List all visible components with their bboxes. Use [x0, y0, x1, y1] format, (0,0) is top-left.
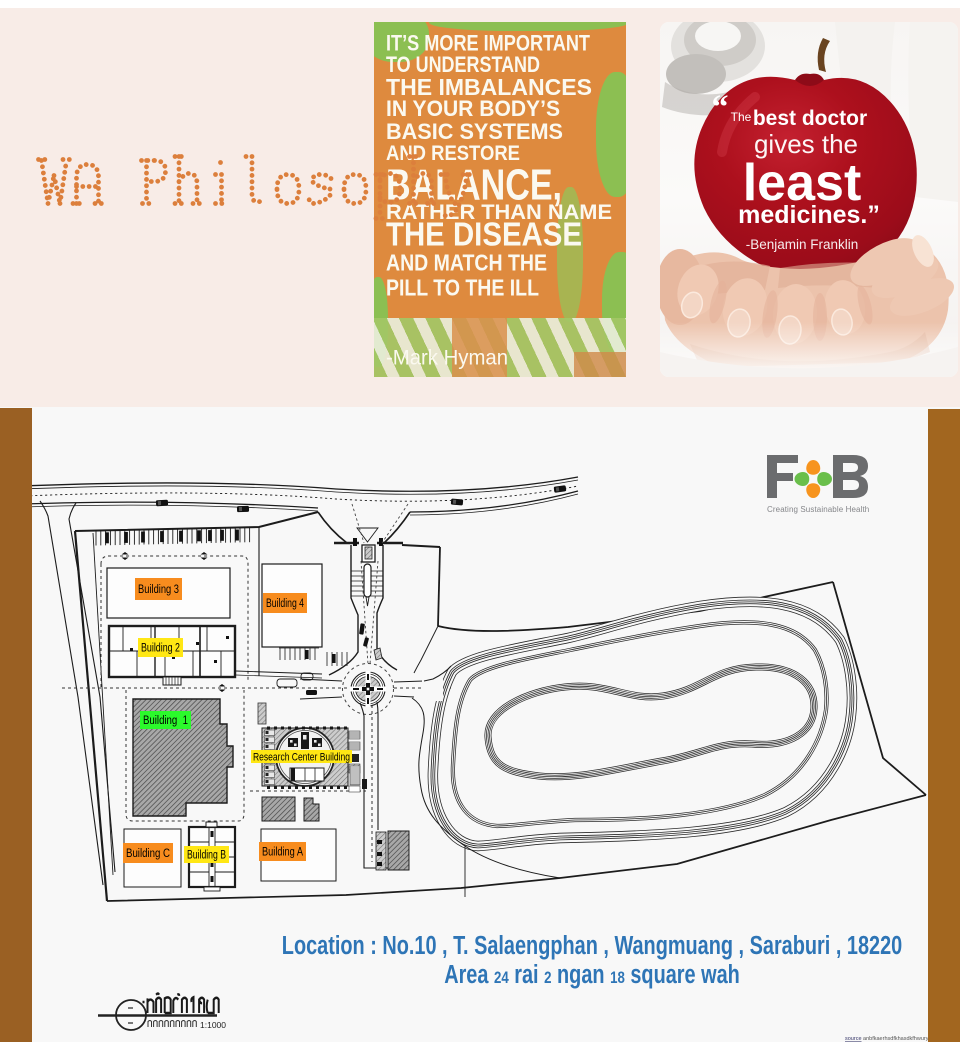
- svg-text:Building C: Building C: [126, 848, 170, 860]
- svg-text:-Benjamin Franklin: -Benjamin Franklin: [746, 237, 859, 252]
- svg-text:Research Center Building: Research Center Building: [253, 751, 350, 763]
- svg-text:“: “: [712, 89, 729, 126]
- svg-text:PILL TO THE ILL: PILL TO THE ILL: [386, 274, 539, 300]
- svg-text:Building 2: Building 2: [141, 643, 180, 655]
- svg-text:best doctor: best doctor: [753, 107, 867, 130]
- svg-text:-Mark Hyman: -Mark Hyman: [386, 347, 508, 370]
- svg-text:medicines.”: medicines.”: [738, 201, 880, 229]
- svg-text:source anbfkaerhsdfkhasdkfhwur: source anbfkaerhsdfkhasdkfhwurylsd: [845, 1036, 936, 1042]
- svg-text:The: The: [731, 110, 752, 124]
- svg-text:Building 1: Building 1: [143, 715, 188, 727]
- svg-text:Building A: Building A: [262, 847, 303, 859]
- svg-text:Building B: Building B: [187, 850, 226, 862]
- svg-text:AND MATCH THE: AND MATCH THE: [386, 250, 547, 276]
- svg-text:Building 3: Building 3: [138, 584, 179, 596]
- svg-text:Building 4: Building 4: [266, 598, 304, 610]
- svg-text:Creating Sustainable Health: Creating Sustainable Health: [767, 505, 869, 514]
- svg-text:1:1000: 1:1000: [200, 1020, 226, 1030]
